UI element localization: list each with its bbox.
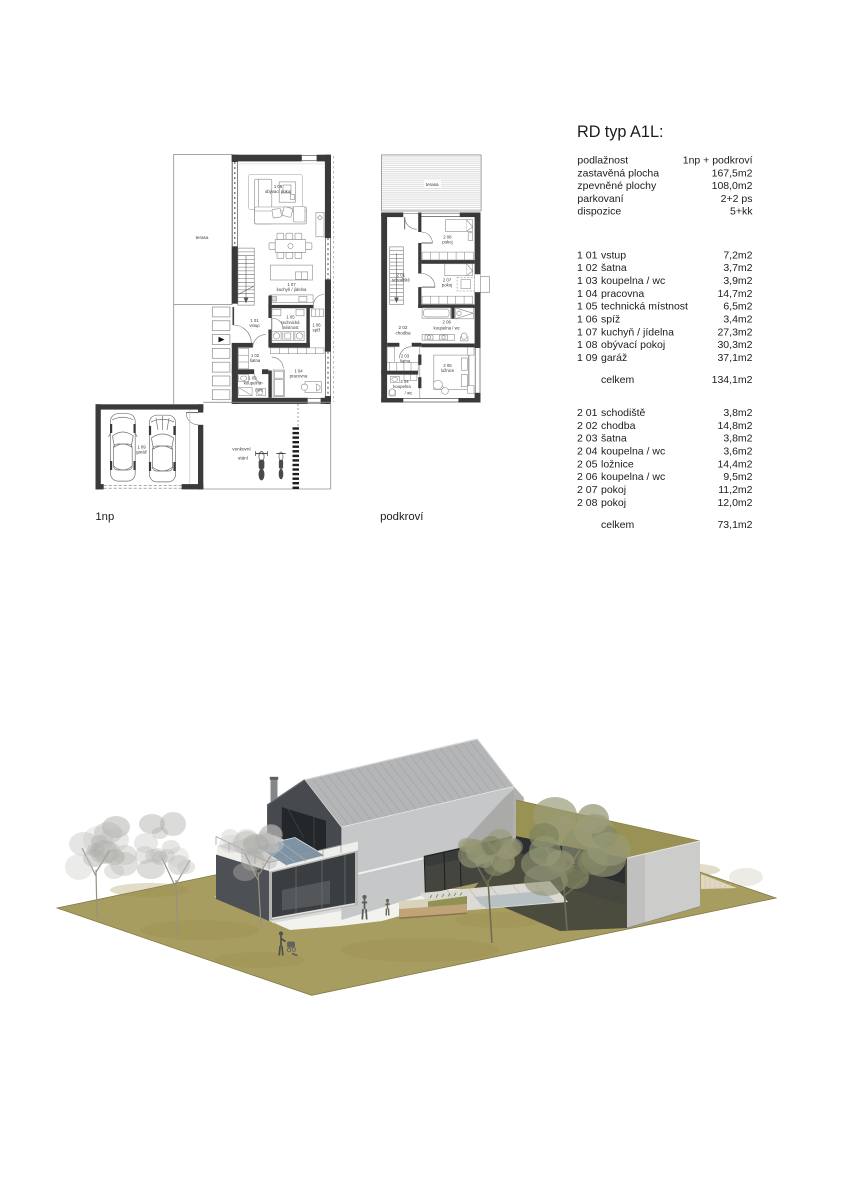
svg-text:kuchyň / jídelna: kuchyň / jídelna bbox=[277, 287, 307, 292]
svg-text:1np: 1np bbox=[95, 511, 114, 523]
svg-text:1 07: 1 07 bbox=[577, 326, 598, 338]
svg-text:1 05: 1 05 bbox=[577, 301, 598, 313]
svg-text:3,6m2: 3,6m2 bbox=[723, 446, 752, 458]
svg-text:14,7m2: 14,7m2 bbox=[717, 288, 752, 300]
svg-text:parkovaní: parkovaní bbox=[577, 193, 623, 205]
svg-text:zpevněné plochy: zpevněné plochy bbox=[577, 180, 657, 192]
svg-text:šatna: šatna bbox=[601, 433, 627, 445]
svg-text:podkroví: podkroví bbox=[380, 511, 424, 523]
svg-text:3,4m2: 3,4m2 bbox=[723, 314, 752, 326]
svg-text:1 08: 1 08 bbox=[577, 339, 598, 351]
svg-text:6,5m2: 6,5m2 bbox=[723, 301, 752, 313]
svg-text:pokoj: pokoj bbox=[601, 497, 626, 509]
svg-text:7,2m2: 7,2m2 bbox=[723, 249, 752, 261]
svg-text:2 04: 2 04 bbox=[577, 446, 598, 458]
svg-text:2 08: 2 08 bbox=[577, 497, 598, 509]
svg-text:1 01: 1 01 bbox=[577, 249, 598, 261]
svg-text:1 09: 1 09 bbox=[577, 352, 598, 364]
svg-text:12,0m2: 12,0m2 bbox=[717, 497, 752, 509]
svg-text:chodba: chodba bbox=[395, 331, 411, 336]
svg-text:spíž: spíž bbox=[601, 314, 620, 326]
svg-text:schodiště: schodiště bbox=[601, 407, 646, 419]
svg-text:/ wc: / wc bbox=[405, 391, 413, 396]
svg-text:37,1m2: 37,1m2 bbox=[717, 352, 752, 364]
svg-text:108,0m2: 108,0m2 bbox=[712, 180, 753, 192]
svg-text:3,9m2: 3,9m2 bbox=[723, 275, 752, 287]
svg-text:2 07: 2 07 bbox=[577, 484, 598, 496]
svg-text:2 06: 2 06 bbox=[577, 471, 598, 483]
svg-text:2 02: 2 02 bbox=[577, 420, 598, 432]
svg-text:3,7m2: 3,7m2 bbox=[723, 262, 752, 274]
svg-text:šatna: šatna bbox=[250, 358, 261, 363]
svg-text:šatna: šatna bbox=[400, 359, 411, 364]
svg-text:pokoj: pokoj bbox=[442, 283, 452, 288]
svg-text:1 03: 1 03 bbox=[577, 275, 598, 287]
svg-text:14,4m2: 14,4m2 bbox=[717, 458, 752, 470]
svg-text:3,8m2: 3,8m2 bbox=[723, 433, 752, 445]
svg-text:venkovní: venkovní bbox=[232, 447, 251, 452]
svg-text:30,3m2: 30,3m2 bbox=[717, 339, 752, 351]
svg-text:schodiště: schodiště bbox=[392, 278, 411, 283]
svg-text:technická místnost: technická místnost bbox=[601, 301, 688, 313]
svg-text:terasa: terasa bbox=[196, 235, 209, 240]
svg-text:koupelna / wc: koupelna / wc bbox=[601, 275, 665, 287]
svg-text:ložnice: ložnice bbox=[441, 368, 455, 373]
svg-text:9,5m2: 9,5m2 bbox=[723, 471, 752, 483]
svg-text:zastavěná plocha: zastavěná plocha bbox=[577, 167, 659, 179]
svg-text:koupelna / wc: koupelna / wc bbox=[434, 325, 461, 330]
svg-text:terasa: terasa bbox=[426, 182, 439, 187]
svg-text:27,3m2: 27,3m2 bbox=[717, 326, 752, 338]
svg-text:pokoj: pokoj bbox=[442, 240, 452, 245]
svg-text:podlažnost: podlažnost bbox=[577, 154, 628, 166]
svg-text:dispozice: dispozice bbox=[577, 206, 621, 218]
svg-text:pracovna: pracovna bbox=[601, 288, 644, 300]
svg-text:typ A1L:: typ A1L: bbox=[605, 123, 664, 141]
svg-text:2 03: 2 03 bbox=[577, 433, 598, 445]
svg-text:obývací pokoj: obývací pokoj bbox=[265, 189, 291, 194]
svg-text:73,1m2: 73,1m2 bbox=[717, 519, 752, 531]
svg-text:chodba: chodba bbox=[601, 420, 636, 432]
svg-text:celkem: celkem bbox=[601, 519, 635, 531]
svg-text:2 05: 2 05 bbox=[577, 458, 598, 470]
svg-text:2+2 ps: 2+2 ps bbox=[721, 193, 753, 205]
svg-text:koupelna: koupelna bbox=[393, 384, 411, 389]
svg-text:obývací pokoj: obývací pokoj bbox=[601, 339, 665, 351]
svg-text:stání: stání bbox=[238, 456, 249, 461]
svg-text:1np + podkroví: 1np + podkroví bbox=[683, 154, 753, 166]
svg-text:2 02: 2 02 bbox=[399, 325, 408, 330]
svg-text:vstup: vstup bbox=[249, 323, 260, 328]
svg-text:ložnice: ložnice bbox=[601, 458, 634, 470]
svg-text:kuchyň / jídelna: kuchyň / jídelna bbox=[601, 326, 674, 338]
svg-text:3,8m2: 3,8m2 bbox=[723, 407, 752, 419]
svg-text:koupelna / wc: koupelna / wc bbox=[601, 471, 665, 483]
svg-text:/ wc: / wc bbox=[255, 388, 263, 393]
svg-text:garáž: garáž bbox=[601, 352, 627, 364]
svg-text:RD: RD bbox=[577, 123, 601, 141]
svg-text:1 02: 1 02 bbox=[577, 262, 598, 274]
svg-text:2 01: 2 01 bbox=[577, 407, 598, 419]
svg-text:garáž: garáž bbox=[136, 450, 147, 455]
svg-text:134,1m2: 134,1m2 bbox=[712, 374, 753, 386]
svg-text:14,8m2: 14,8m2 bbox=[717, 420, 752, 432]
svg-text:2 06: 2 06 bbox=[443, 320, 452, 325]
svg-text:pokoj: pokoj bbox=[601, 484, 626, 496]
svg-text:spíž: spíž bbox=[313, 328, 321, 333]
svg-text:167,5m2: 167,5m2 bbox=[712, 167, 753, 179]
svg-text:místnost: místnost bbox=[282, 325, 299, 330]
svg-text:5+kk: 5+kk bbox=[730, 206, 753, 218]
svg-text:1 06: 1 06 bbox=[577, 314, 598, 326]
svg-text:11,2m2: 11,2m2 bbox=[718, 484, 752, 496]
svg-text:šatna: šatna bbox=[601, 262, 627, 274]
svg-text:1 04: 1 04 bbox=[577, 288, 598, 300]
svg-text:koupelna: koupelna bbox=[244, 381, 262, 386]
svg-text:celkem: celkem bbox=[601, 374, 635, 386]
svg-text:pracovna: pracovna bbox=[290, 374, 308, 379]
svg-text:vstup: vstup bbox=[601, 249, 626, 261]
svg-text:koupelna / wc: koupelna / wc bbox=[601, 446, 665, 458]
